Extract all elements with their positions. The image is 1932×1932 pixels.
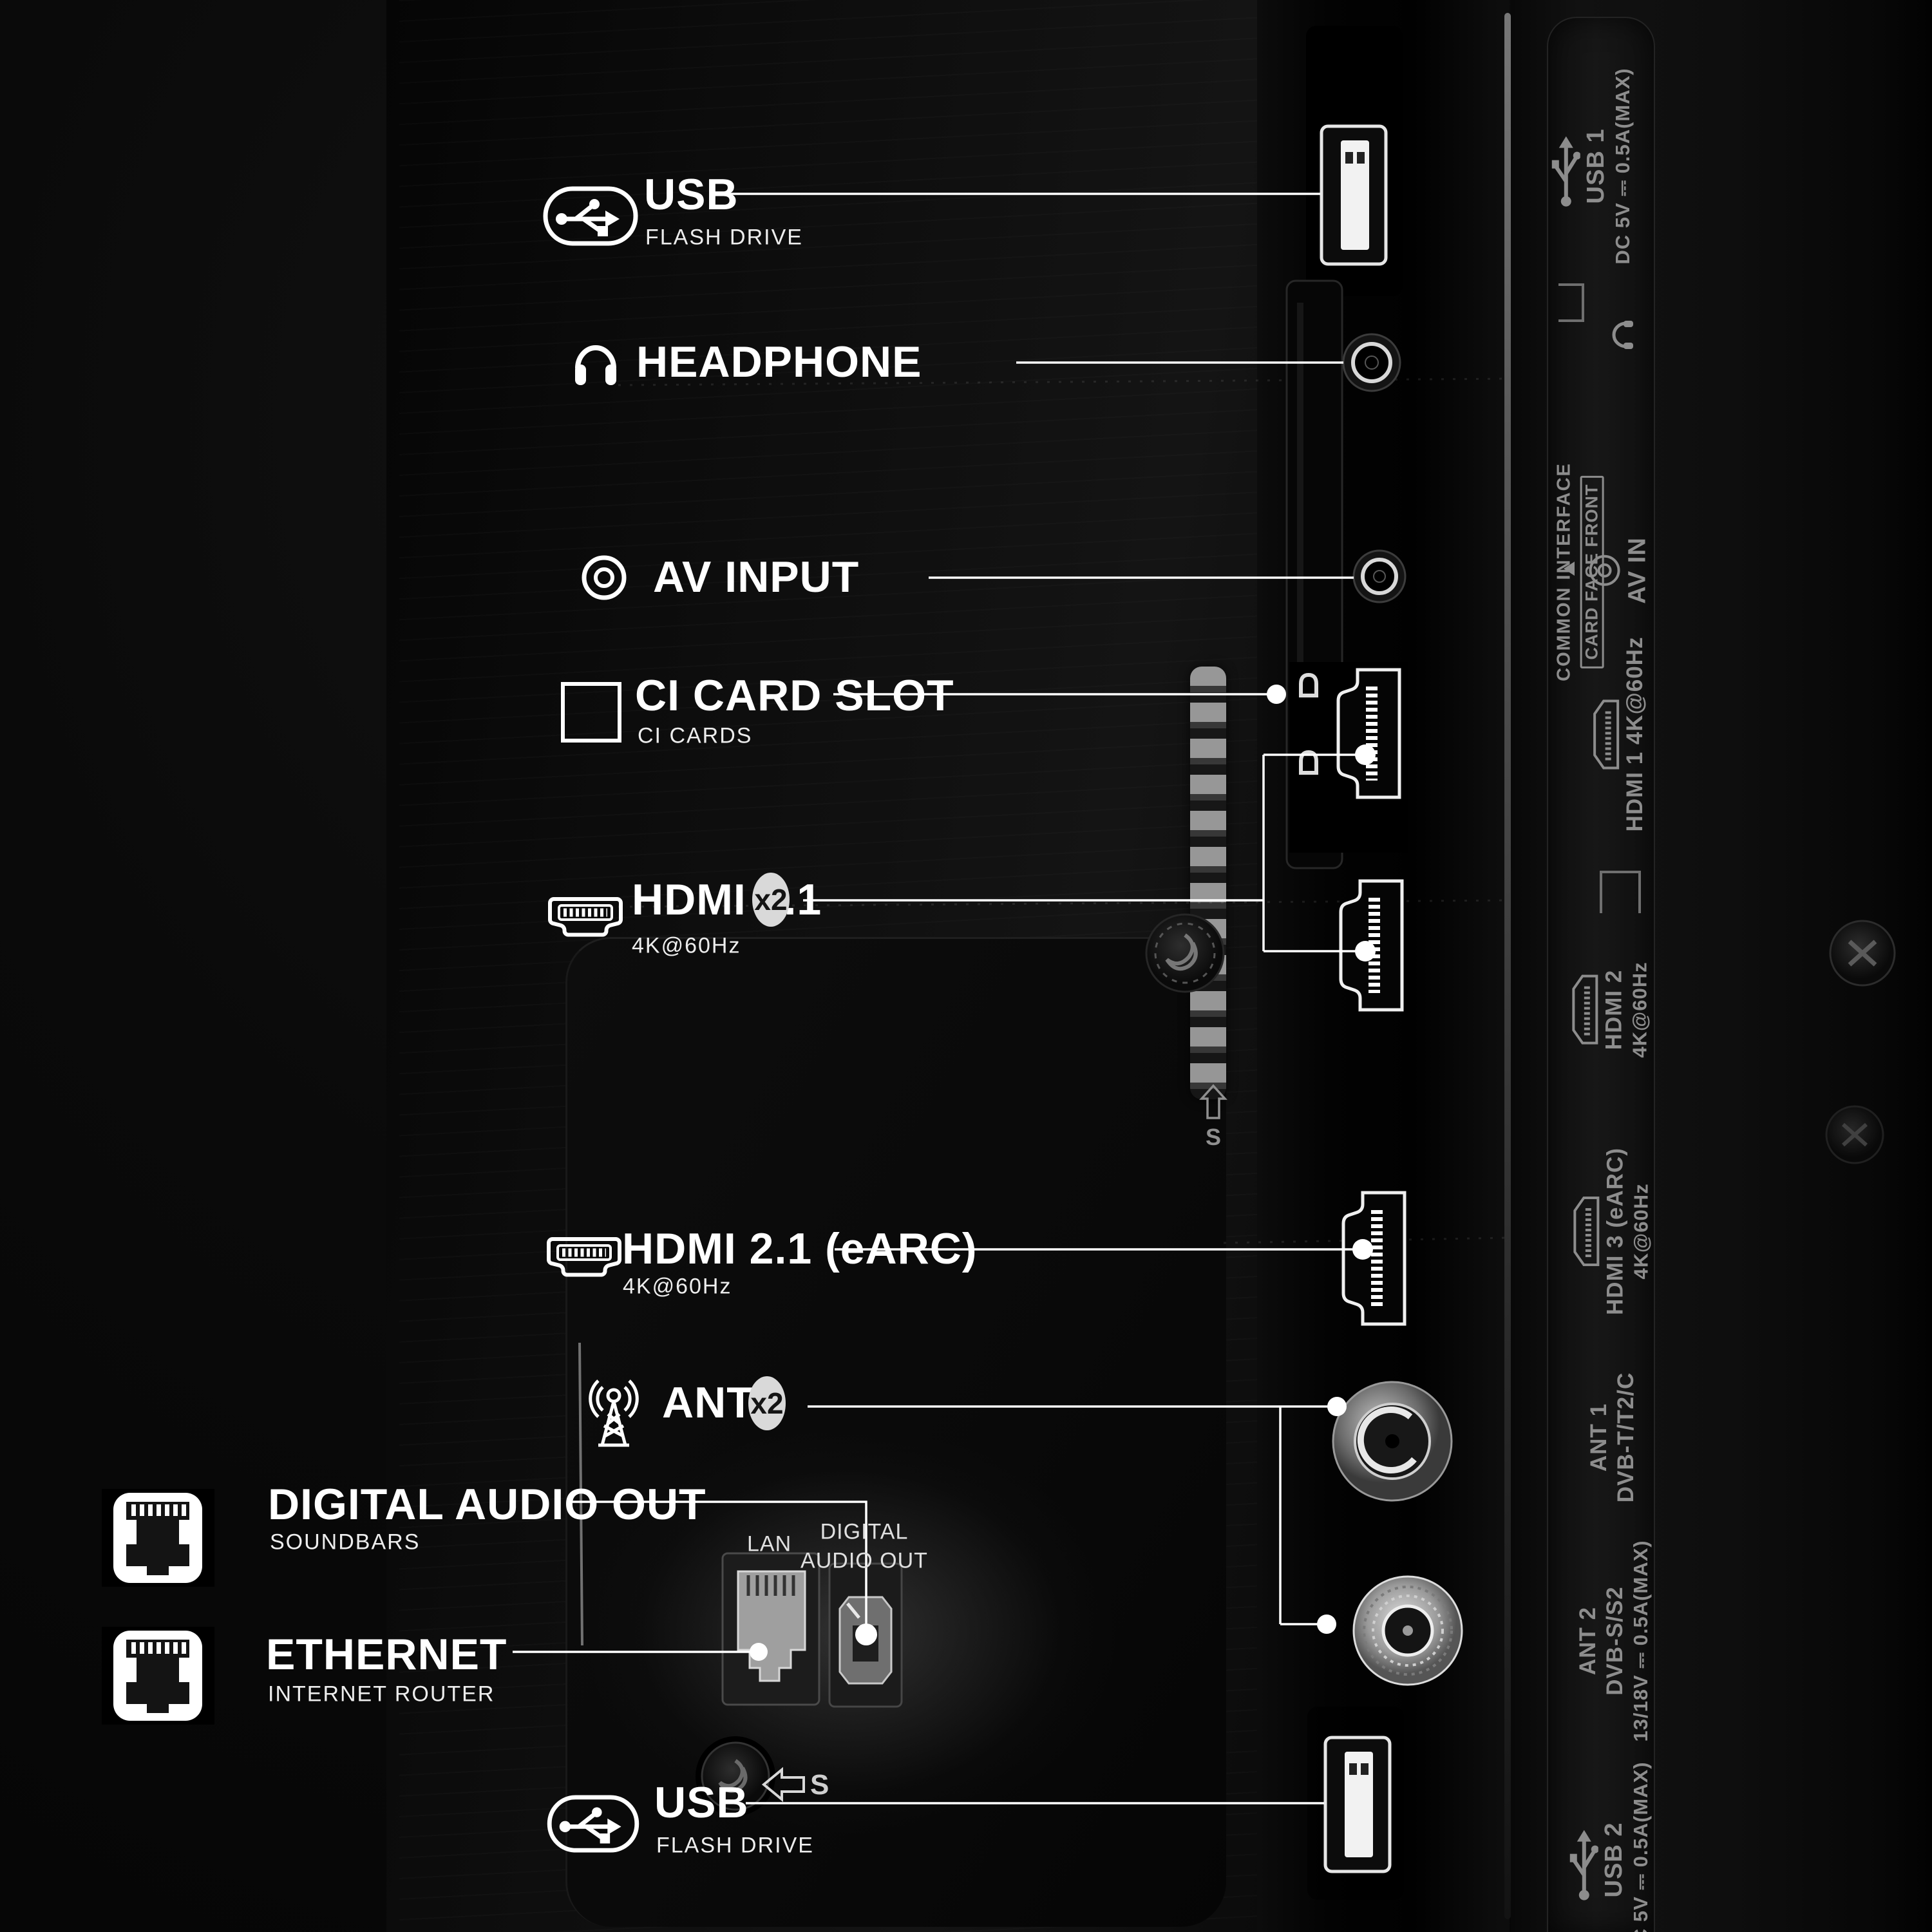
hdmi-icon	[546, 1229, 622, 1283]
plate-bracket	[1558, 283, 1584, 322]
lan-port	[723, 1553, 819, 1705]
callout-hdmi-earc-subtitle: 4K@60Hz	[623, 1274, 732, 1300]
plate-label-usb2: USB 2 DC 5V ⎓ 0.5A(MAX)	[1569, 1761, 1651, 1932]
usb-icon	[542, 185, 639, 247]
screw-right-upper	[1830, 921, 1895, 985]
usb-trident-icon	[1551, 124, 1580, 209]
ant-x2-badge: x2	[748, 1376, 786, 1430]
callout-av-input-title: AV INPUT	[653, 552, 859, 602]
hdmi-x2-badge: x2	[752, 873, 790, 927]
screw-right-lower	[1826, 1106, 1883, 1163]
headphone-icon	[573, 327, 618, 390]
digital-audio-port-label-line1: DIGITAL	[820, 1520, 909, 1545]
plate-headphone-icon-wrap	[1605, 319, 1635, 350]
plate-label-usb1: USB 1 DC 5V ⎓ 0.5A(MAX)	[1551, 68, 1633, 264]
rj45-icon	[102, 1489, 214, 1587]
callout-usb-bottom-title: USB	[654, 1777, 749, 1828]
av-target-icon	[1587, 553, 1622, 588]
callout-ethernet-subtitle: INTERNET ROUTER	[268, 1682, 495, 1707]
screw-mid	[1146, 914, 1224, 992]
callout-headphone-title: HEADPHONE	[636, 337, 922, 387]
callout-ant-title: ANT	[662, 1378, 754, 1428]
callout-usb-bottom-subtitle: FLASH DRIVE	[656, 1833, 814, 1859]
usb2-port	[1325, 1738, 1390, 1871]
callout-ethernet-title: ETHERNET	[266, 1629, 507, 1680]
plate-bracket	[1600, 871, 1641, 913]
hdmi-icon	[547, 889, 623, 943]
av-input-jack-port	[1354, 551, 1405, 602]
usb-icon	[544, 1794, 642, 1853]
ant1-connector	[1333, 1382, 1452, 1501]
callout-ci-slot-title: CI CARD SLOT	[635, 670, 954, 721]
callout-digital-audio-subtitle: SOUNDBARS	[270, 1530, 420, 1555]
s-marker-bottom: S	[810, 1769, 829, 1801]
usb1-port	[1321, 126, 1386, 264]
s-marker-mid: S	[1206, 1124, 1221, 1151]
usb-trident-icon	[1569, 1817, 1598, 1902]
plate-label-ant1: ANT 1 DVB-T/T2/C	[1587, 1372, 1638, 1503]
digital-audio-port-label-line2: AUDIO OUT	[800, 1549, 928, 1574]
leader-dots	[750, 685, 1376, 1661]
callout-usb-top-subtitle: FLASH DRIVE	[645, 225, 803, 251]
plate-label-hdmi1: HDMI 1 4K@60Hz	[1591, 637, 1647, 832]
plate-label-av-in: AV IN	[1587, 537, 1651, 604]
rj45-icon	[102, 1627, 214, 1725]
hdmi-icon	[1569, 974, 1599, 1046]
callout-usb-top-title: USB	[644, 169, 739, 220]
tv-ports-diagram: USB FLASH DRIVE HEADPHONE AV INPUT CI CA…	[0, 0, 1932, 1932]
callout-hdmi-title: HDMI 2.1	[632, 875, 822, 925]
hdmi-icon	[1571, 1195, 1600, 1267]
plate-label-ant2: ANT 2 DVB-S/S2 13/18V ⎓ 0.5A(MAX)	[1577, 1540, 1651, 1741]
callout-digital-audio-title: DIGITAL AUDIO OUT	[268, 1479, 706, 1529]
headphone-jack-port	[1343, 334, 1400, 391]
card-slot-icon	[560, 681, 622, 743]
plate-label-hdmi3: HDMI 3 (eARC) 4K@60Hz	[1571, 1148, 1651, 1315]
arrow-up-icon	[1202, 1086, 1225, 1118]
headphone-icon	[1605, 319, 1635, 350]
av-target-icon	[581, 554, 627, 601]
callout-ci-slot-subtitle: CI CARDS	[638, 724, 752, 749]
ant2-connector	[1354, 1577, 1462, 1685]
hdmi-icon	[1591, 698, 1620, 770]
lan-port-label: LAN	[747, 1532, 791, 1557]
leader-lines	[513, 194, 1359, 1803]
callout-hdmi-earc-title: HDMI 2.1 (eARC)	[622, 1224, 978, 1274]
antenna-icon	[582, 1365, 646, 1450]
hdmi3-port	[1343, 1193, 1405, 1324]
callout-hdmi-subtitle: 4K@60Hz	[632, 934, 741, 959]
plate-label-hdmi2: HDMI 2 4K@60Hz	[1569, 961, 1650, 1057]
